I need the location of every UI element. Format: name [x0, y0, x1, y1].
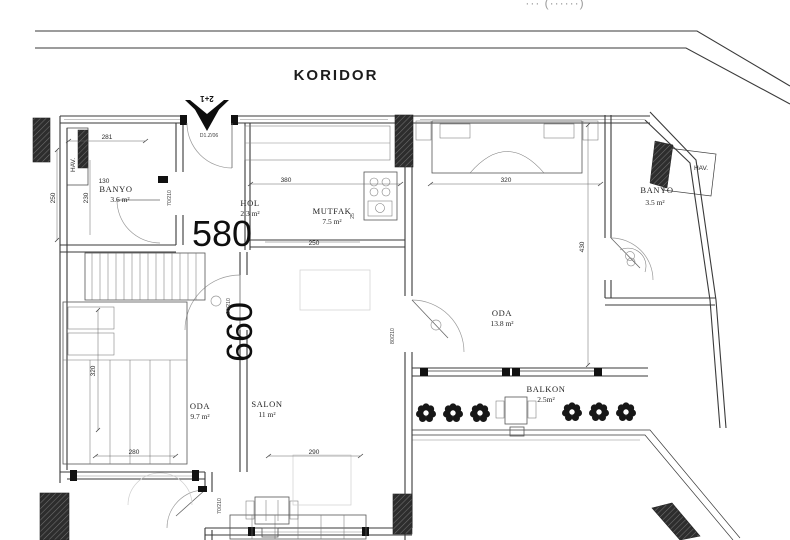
room-mutfak-area: 7.5 m² — [322, 217, 342, 226]
room-salon-area: 11 m² — [258, 410, 276, 419]
balcony-plants — [416, 402, 636, 422]
room-oda1-name: ODA — [492, 308, 512, 318]
room-banyo1-area: 3.6 m² — [110, 195, 130, 204]
room-mutfak-name: MUTFAK — [313, 206, 352, 216]
window-balcony — [420, 368, 602, 376]
dim-mutfak-top: 380 — [281, 177, 292, 184]
dim-oda1-right: 430 — [579, 241, 586, 252]
corridor-label: KORIDOR — [294, 67, 379, 84]
room-balkon-area: 2.5m² — [537, 395, 555, 404]
dim-oda2-bottom: 280 — [129, 449, 140, 456]
entrance-door-code: D1.Z/06 — [200, 133, 219, 139]
dim-oda1-top: 320 — [501, 177, 512, 184]
furniture — [63, 121, 646, 539]
salon-bottom-door — [167, 486, 207, 528]
dim-left-inner: 230 — [83, 192, 90, 203]
hav-left-label: HAV. — [70, 158, 77, 172]
dim-left-outer: 250 — [50, 192, 57, 203]
room-hol-name: HOL — [240, 198, 259, 208]
top-cutoff-text: ··· (······) — [525, 0, 584, 10]
room-oda1-area: 13.8 m² — [490, 319, 514, 328]
overall-width-number: 580 — [192, 213, 252, 254]
oda1-door — [412, 300, 464, 352]
unit-type-label: 2+1 — [200, 94, 214, 103]
dim-salon-bottom: 290 — [309, 449, 320, 456]
vent-duct-right — [650, 141, 673, 188]
plant-icon — [470, 403, 490, 422]
column-bottom-right-diagonal — [652, 503, 700, 540]
single-bed-icon — [63, 302, 187, 464]
doors — [117, 115, 653, 528]
column-kitchen — [395, 115, 413, 167]
entrance-arrow-icon — [185, 100, 229, 131]
room-banyo1-name: BANYO — [99, 184, 132, 194]
floor-plan-canvas: ··· (······) KORIDOR 2+1 D1.Z/06 — [0, 0, 790, 540]
banyo2-door — [611, 238, 653, 280]
plant-icon — [616, 402, 636, 421]
room-balkon-name: BALKON — [526, 384, 565, 394]
vent-duct-left — [78, 130, 88, 168]
hav-right-label: HAV. — [694, 165, 708, 172]
room-banyo2-area: 3.5 m² — [645, 198, 665, 207]
plant-icon — [416, 403, 436, 422]
double-bed-icon — [416, 121, 598, 173]
room-oda2-name: ODA — [190, 401, 210, 411]
plant-icon — [562, 402, 582, 421]
column-top-left — [33, 118, 50, 162]
dim-kitchen-side: 25 — [350, 213, 356, 219]
sink-icon — [368, 201, 392, 216]
stove-icon — [370, 178, 390, 196]
wardrobe-icon — [85, 253, 205, 300]
room-salon-name: SALON — [251, 399, 282, 409]
room-labels: 130 BANYO 3.6 m² HOL 2.3 m² 580 660 MUTF… — [99, 178, 674, 421]
dim-oda2-left: 320 — [90, 365, 97, 376]
plant-icon — [443, 403, 463, 422]
column-bottom-center — [393, 494, 412, 534]
dim-top-left: 281 — [102, 134, 113, 141]
plant-icon — [589, 402, 609, 421]
room-banyo2-name: BANYO — [640, 185, 673, 195]
door-size-salon-bottom: 70/210 — [217, 498, 223, 514]
dim-mutfak-bottom: 250 — [309, 240, 320, 247]
door-size-oda2-salon: 90/210 — [226, 298, 232, 314]
corridor-walls — [35, 31, 790, 104]
room-oda2-area: 9.7 m² — [190, 412, 210, 421]
column-bottom-left — [40, 493, 69, 540]
door-size-banyo1: 70/210 — [167, 190, 173, 206]
vent-shaft-left: HAV. — [67, 128, 88, 185]
door-size-oda1: 80/210 — [390, 328, 396, 344]
floor-plan-drawing: ··· (······) KORIDOR 2+1 D1.Z/06 — [0, 0, 790, 540]
